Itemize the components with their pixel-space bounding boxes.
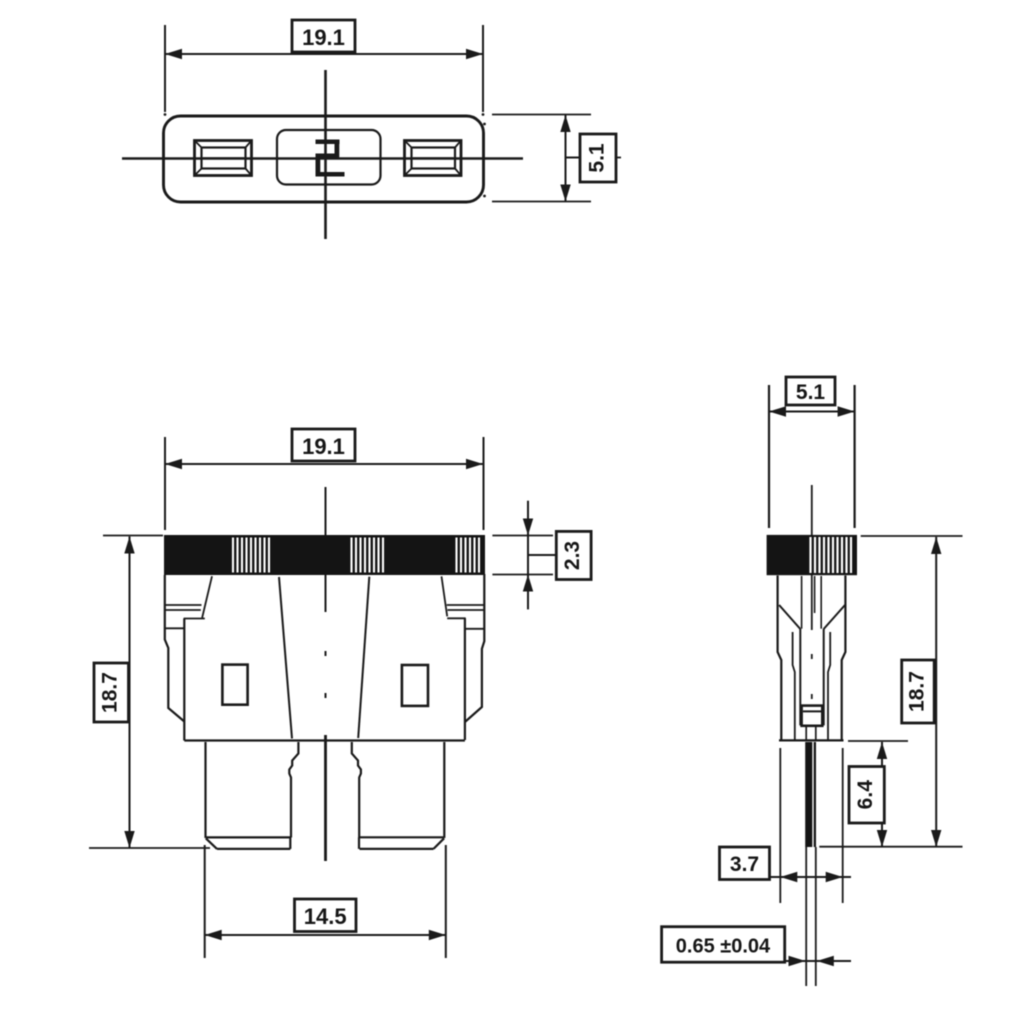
svg-text:0.65 ±0.04: 0.65 ±0.04 [676,936,771,958]
svg-text:19.1: 19.1 [302,434,345,459]
svg-text:5.1: 5.1 [796,381,826,404]
svg-text:18.7: 18.7 [905,671,928,712]
svg-text:2.3: 2.3 [561,541,584,570]
svg-text:5.1: 5.1 [586,143,609,173]
svg-text:19.1: 19.1 [302,25,345,50]
svg-text:14.5: 14.5 [304,904,347,929]
svg-text:18.7: 18.7 [99,672,122,713]
svg-text:3.7: 3.7 [730,853,759,876]
svg-text:6.4: 6.4 [854,780,877,810]
